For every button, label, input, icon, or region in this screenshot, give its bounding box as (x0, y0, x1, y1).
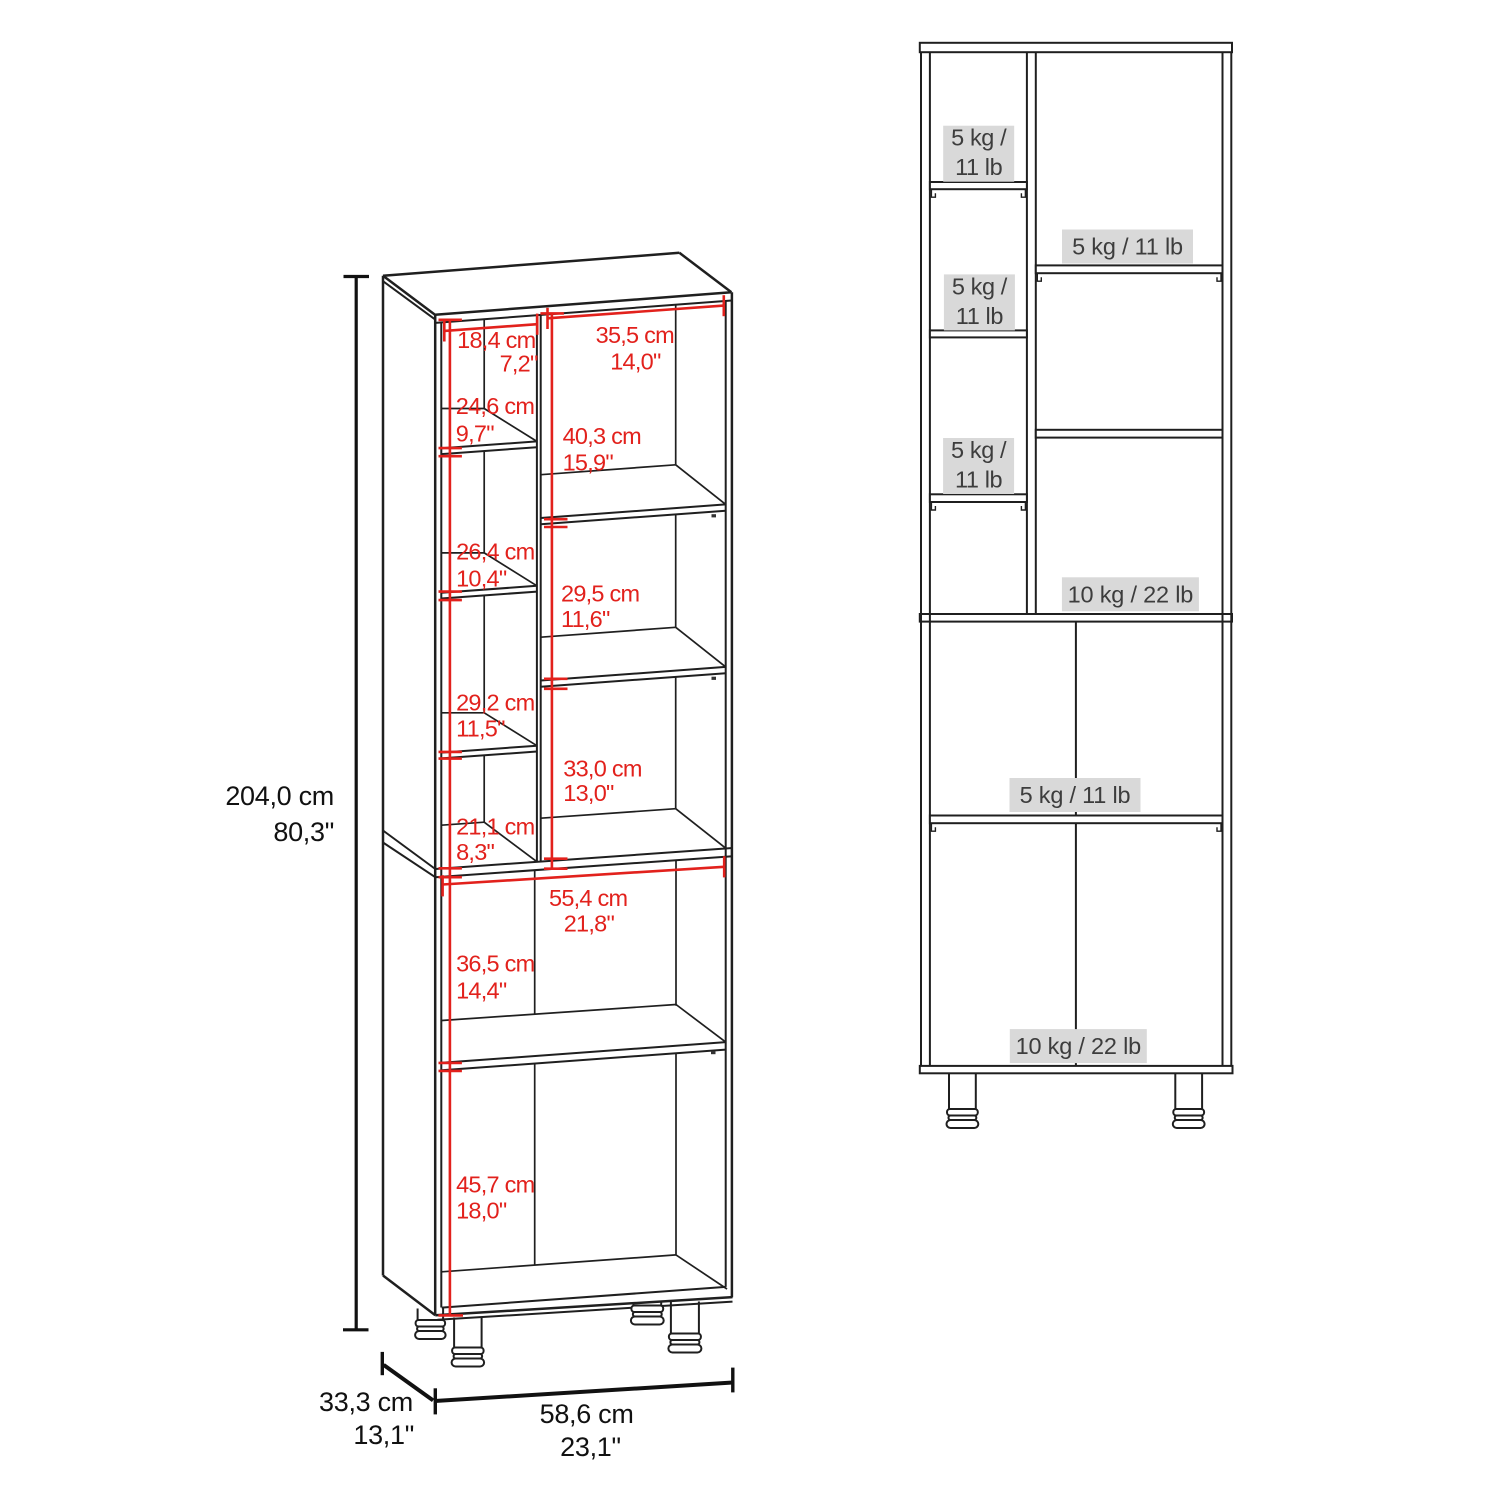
svg-text:5 kg /: 5 kg / (951, 437, 1007, 463)
svg-text:204,0 cm: 204,0 cm (225, 781, 334, 811)
svg-text:21,8": 21,8" (564, 911, 615, 937)
svg-text:33,0 cm: 33,0 cm (563, 756, 642, 782)
svg-text:45,7 cm: 45,7 cm (456, 1172, 535, 1198)
svg-text:23,1": 23,1" (560, 1432, 621, 1462)
svg-text:8,3": 8,3" (456, 839, 494, 865)
svg-text:5 kg / 11 lb: 5 kg / 11 lb (1020, 782, 1131, 808)
svg-text:24,6 cm: 24,6 cm (456, 393, 535, 419)
svg-text:33,3 cm: 33,3 cm (319, 1387, 413, 1417)
svg-text:5 kg /: 5 kg / (952, 273, 1008, 299)
svg-text:11,6": 11,6" (561, 606, 610, 632)
svg-text:18,4 cm: 18,4 cm (457, 327, 536, 353)
svg-text:9,7": 9,7" (456, 421, 494, 447)
svg-text:11,5": 11,5" (456, 716, 505, 742)
svg-text:10,4": 10,4" (456, 566, 507, 592)
svg-text:10 kg / 22 lb: 10 kg / 22 lb (1016, 1033, 1142, 1059)
svg-text:11 lb: 11 lb (955, 467, 1003, 493)
svg-text:13,1": 13,1" (353, 1420, 414, 1450)
svg-text:10 kg / 22 lb: 10 kg / 22 lb (1068, 581, 1194, 607)
svg-text:11 lb: 11 lb (956, 303, 1004, 329)
svg-text:58,6 cm: 58,6 cm (540, 1399, 634, 1429)
svg-text:55,4 cm: 55,4 cm (549, 885, 628, 911)
svg-text:5 kg /: 5 kg / (951, 125, 1007, 151)
svg-text:5 kg / 11 lb: 5 kg / 11 lb (1072, 234, 1183, 260)
svg-text:35,5 cm: 35,5 cm (596, 322, 675, 348)
svg-text:11 lb: 11 lb (955, 154, 1003, 180)
svg-text:29,2 cm: 29,2 cm (456, 690, 535, 716)
svg-text:15,9": 15,9" (563, 450, 614, 476)
svg-text:18,0": 18,0" (456, 1198, 507, 1224)
svg-text:40,3 cm: 40,3 cm (563, 423, 642, 449)
svg-text:14,4": 14,4" (456, 978, 507, 1004)
svg-text:29,5 cm: 29,5 cm (561, 581, 640, 607)
svg-text:7,2": 7,2" (500, 351, 538, 377)
svg-text:26,4 cm: 26,4 cm (456, 539, 535, 565)
svg-text:21,1 cm: 21,1 cm (456, 814, 535, 840)
svg-text:14,0": 14,0" (610, 349, 661, 375)
svg-text:36,5 cm: 36,5 cm (456, 951, 535, 977)
svg-text:80,3": 80,3" (273, 817, 334, 847)
svg-text:13,0": 13,0" (563, 780, 614, 806)
